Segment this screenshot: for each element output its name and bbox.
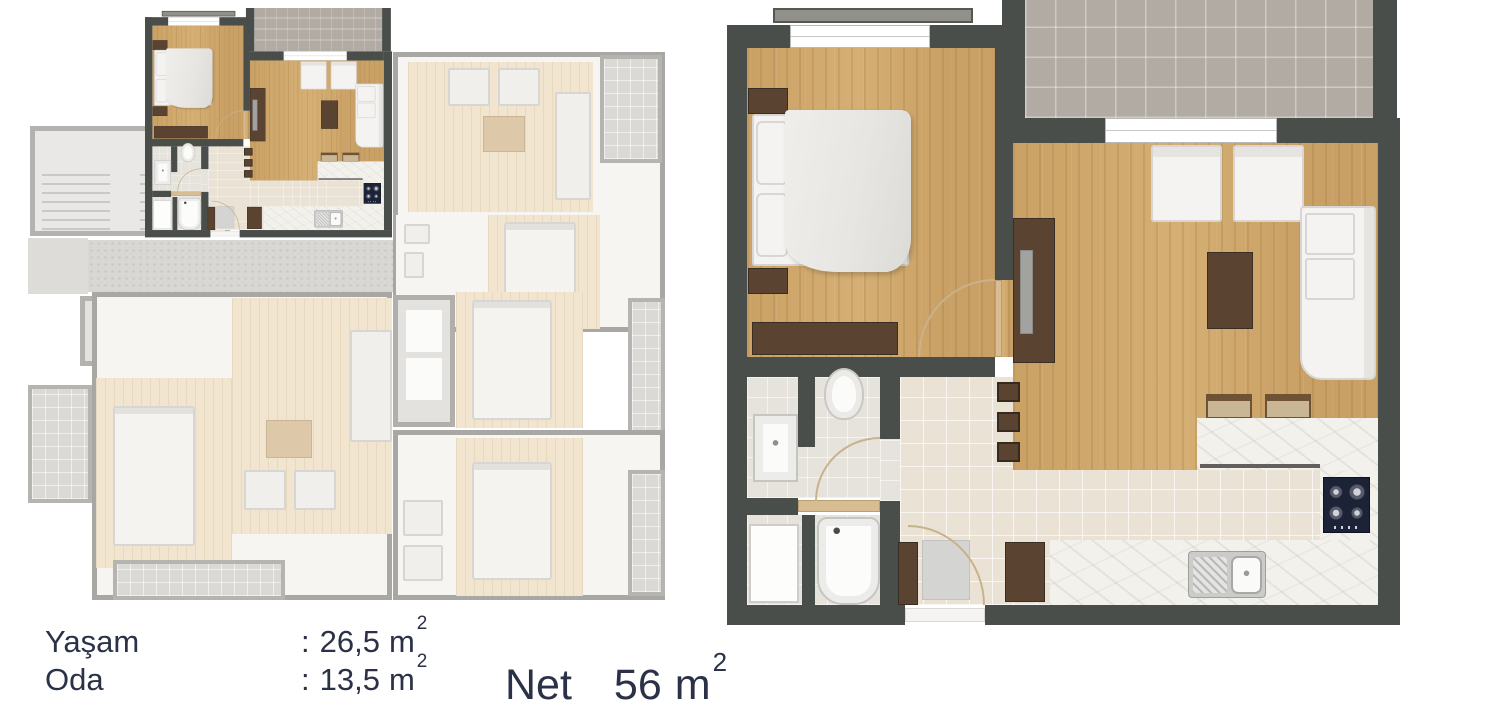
kitchen-counter [1197, 418, 1378, 470]
area-legend-row: Oda : 13,5 m 2 [45, 662, 427, 698]
balcony-sill [773, 8, 973, 23]
building-overview-plan [28, 0, 668, 605]
area-unit-sup: 2 [417, 613, 428, 635]
bedroom-door-leaf [995, 280, 1002, 357]
sink-basin [330, 212, 341, 226]
faded-bed [472, 300, 552, 420]
bar-stool [342, 153, 359, 162]
nightstand [153, 40, 168, 50]
faded-coffee-table [266, 420, 312, 458]
wall-shelf [997, 412, 1020, 432]
bedroom-wall-bottom [145, 139, 243, 146]
area-value: 26,5 [320, 624, 380, 660]
pillow [756, 193, 788, 257]
area-label: Yaşam [45, 624, 301, 660]
stair-flight [42, 168, 110, 230]
balcony-floor [1025, 0, 1373, 118]
net-area: Net 56 m 2 [505, 661, 727, 710]
living-wall-top [250, 51, 284, 60]
counter-edge [319, 178, 363, 179]
tub-divider-wall [802, 515, 815, 605]
unit-detail-plan [727, 0, 1400, 625]
entry-threshold [905, 608, 985, 622]
living-wall-top [347, 51, 384, 60]
wall-right [384, 51, 392, 230]
faded-balcony [600, 55, 662, 163]
balcony-wall-right [1373, 0, 1397, 118]
bed-duvet [785, 110, 911, 272]
faded-bed [113, 406, 195, 546]
nightstand [748, 268, 788, 294]
bar-stool [1206, 394, 1252, 419]
stove [364, 183, 381, 204]
faded-balcony [28, 385, 92, 503]
tub-divider-wall [173, 197, 178, 230]
bar-stool [321, 153, 338, 162]
bath-sliding-door [171, 192, 201, 196]
net-unit: m [675, 661, 711, 710]
balcony-wall-right [382, 8, 391, 51]
wc-divider-wall [798, 377, 815, 447]
corridor-end [28, 238, 88, 294]
toilet [181, 143, 196, 162]
faded-fixture [404, 252, 424, 278]
bedroom-wall-top [145, 17, 168, 25]
area-unit: m [389, 662, 415, 698]
wall-shelf [244, 170, 252, 177]
shaft-cell [406, 358, 442, 400]
bedroom-wall-bottom [727, 357, 995, 377]
sofa-cushion [357, 103, 375, 118]
armchair [331, 61, 357, 89]
area-legend-row: Yaşam : 26,5 m 2 [45, 624, 427, 660]
faded-armchair [244, 470, 286, 510]
bathtub [817, 517, 880, 605]
balcony-floor [254, 8, 382, 51]
toilet [824, 368, 864, 420]
bathtub [178, 198, 201, 230]
wall-shelf [997, 442, 1020, 462]
net-unit-sup: 2 [713, 647, 727, 678]
bed-duvet [166, 48, 212, 107]
nightstand [153, 106, 168, 116]
nightstand [748, 88, 788, 114]
balcony-wall-left [1002, 0, 1025, 118]
wc-door-floor [201, 169, 208, 192]
area-value: 13,5 [320, 662, 380, 698]
coffee-table [1207, 252, 1253, 329]
dresser [154, 126, 208, 138]
tv [253, 100, 258, 131]
faded-bed [472, 462, 552, 580]
area-label: Oda [45, 662, 301, 698]
wall-shelf [244, 148, 252, 155]
armchair [301, 61, 327, 89]
shoe-cabinet [247, 207, 262, 229]
bath-divider-wall [152, 191, 171, 197]
faded-sofa [350, 330, 392, 442]
living-window [284, 51, 347, 60]
wall-bottom [727, 605, 905, 625]
faded-balcony [113, 560, 285, 600]
bar-stool [1265, 394, 1311, 419]
faded-armchair [403, 545, 443, 581]
kitchen-sink [1188, 551, 1266, 598]
armchair [1233, 145, 1304, 222]
sofa-cushion [1305, 213, 1355, 255]
washbasin [155, 160, 172, 185]
living-wall-top [1277, 118, 1378, 143]
wc-divider-wall [171, 146, 177, 172]
wall-left [145, 17, 152, 230]
living-wall-top [1013, 118, 1105, 143]
washing-machine [749, 524, 799, 603]
balcony-sill [162, 11, 235, 17]
coffee-table [321, 100, 338, 128]
entry-threshold [210, 231, 239, 236]
bath-sliding-door [798, 500, 880, 512]
armchair [1151, 145, 1222, 222]
bath-wall-right [201, 146, 208, 169]
faded-balcony [628, 470, 665, 596]
bath-wall-right [880, 377, 900, 439]
stove [1323, 477, 1370, 533]
wall-shelf [997, 382, 1020, 402]
shaft-cell [406, 310, 442, 352]
net-label: Net [505, 661, 572, 710]
counter-edge [1200, 464, 1320, 468]
bedroom-window [168, 17, 219, 25]
living-window [1105, 118, 1277, 143]
wall-bottom [145, 230, 210, 237]
faded-coffee-table [483, 116, 525, 152]
area-unit: m [389, 624, 415, 660]
colon: : [301, 624, 310, 660]
washbasin [753, 414, 798, 482]
shoe-cabinet [1005, 542, 1045, 602]
sink-drainboard [316, 212, 328, 225]
bath-wall-right [880, 501, 900, 605]
faded-armchair [403, 500, 443, 536]
faded-armchair [294, 470, 336, 510]
sink-drainboard [1193, 557, 1227, 593]
faded-armchair [498, 68, 540, 106]
wall-shelf [244, 159, 252, 166]
sofa-cushion [1305, 258, 1355, 300]
sofa-cushion [357, 86, 375, 101]
net-value: 56 [614, 661, 662, 710]
balcony-wall-left [246, 8, 254, 51]
wall-bottom [240, 230, 392, 237]
bedroom-door-leaf [243, 111, 246, 139]
faded-sofa [555, 92, 591, 200]
faded-fixture [404, 224, 430, 244]
dresser [752, 322, 898, 355]
wall-right [1378, 118, 1400, 605]
bedroom-wall-top [727, 25, 790, 48]
pillow [756, 121, 788, 185]
sink-basin [1231, 556, 1262, 594]
wall-bottom [985, 605, 1400, 625]
wall-left [727, 25, 747, 605]
colon: : [301, 662, 310, 698]
kitchen-sink [314, 210, 343, 227]
wc-door-floor [880, 439, 900, 501]
washing-machine [153, 200, 171, 229]
bath-divider-wall [747, 498, 798, 515]
faded-armchair [448, 68, 490, 106]
tv [1020, 250, 1033, 334]
bedroom-window [790, 25, 930, 48]
highlighted-unit-plan [145, 8, 392, 238]
area-unit-sup: 2 [417, 651, 428, 673]
